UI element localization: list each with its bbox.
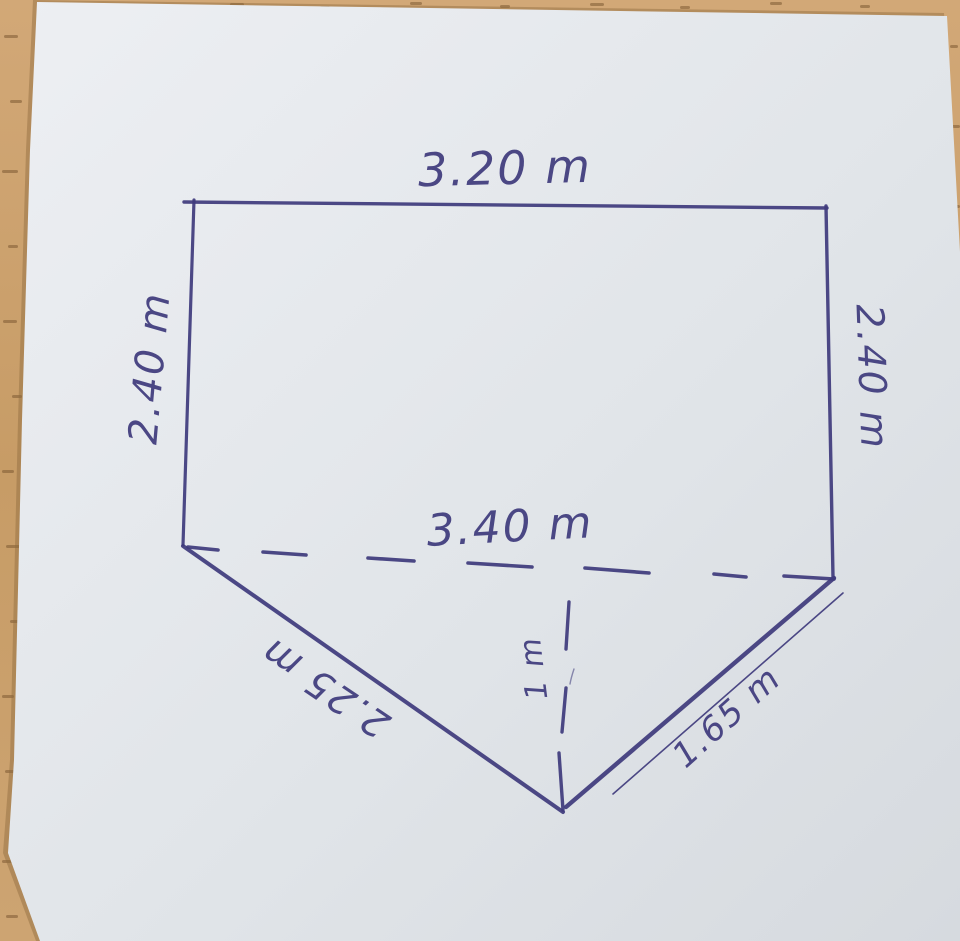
label-middle-width: 3.40 m xyxy=(425,497,594,557)
photo-of-sketch: 3.20 m 2.40 m 2.40 m 3.40 m 2.25 m 1.65 … xyxy=(0,0,960,941)
label-right-height: 2.40 m xyxy=(847,303,896,450)
label-top-width: 3.20 m xyxy=(417,139,592,198)
